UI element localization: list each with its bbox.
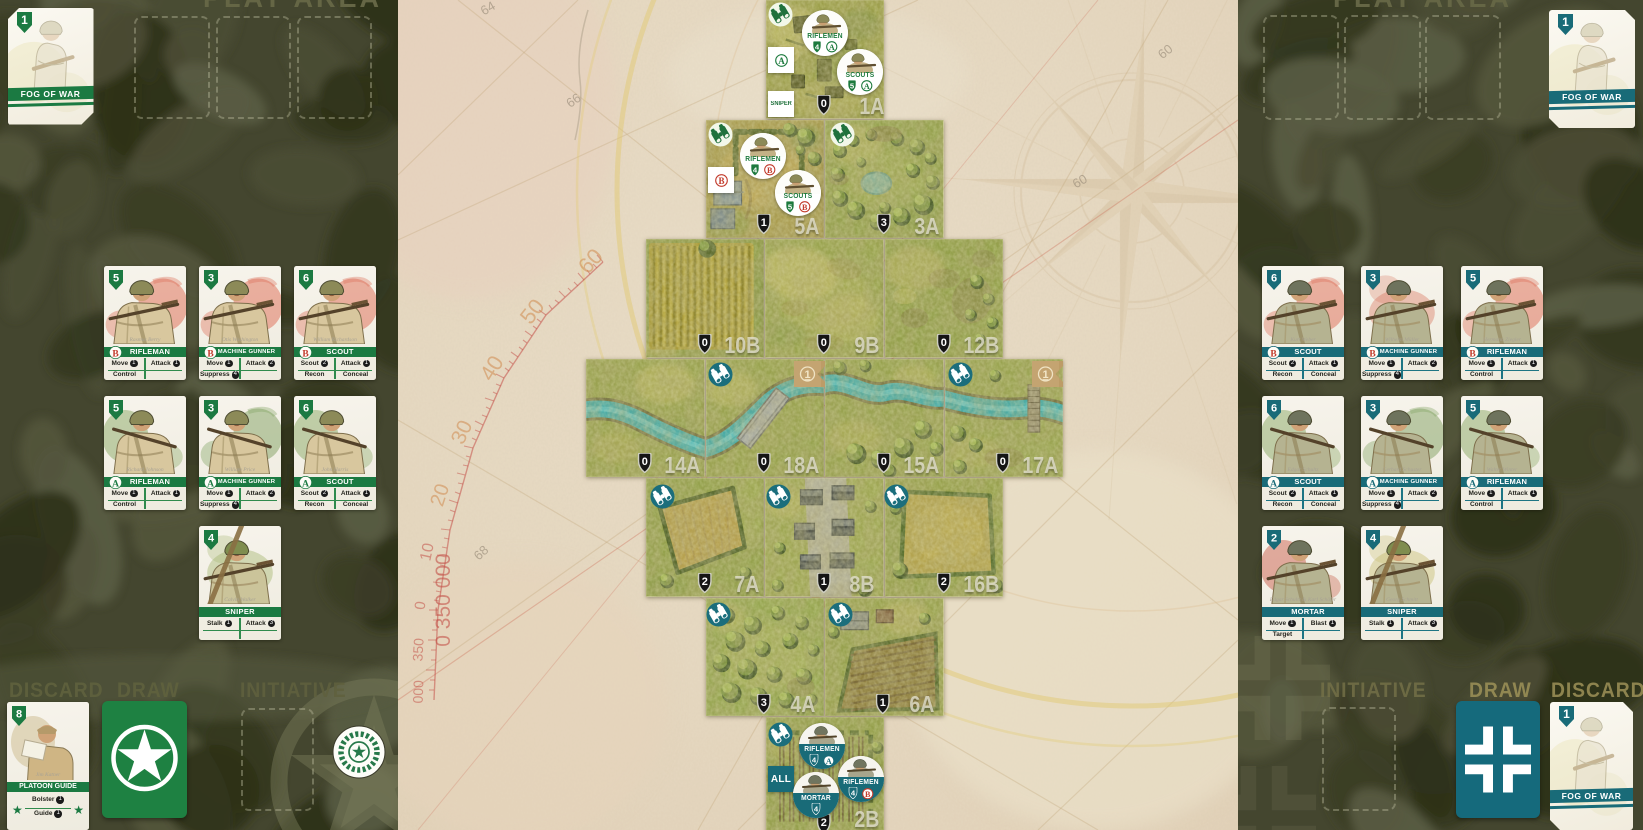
- svg-text:0: 0: [702, 337, 708, 349]
- svg-text:B: B: [767, 166, 773, 175]
- svg-text:5: 5: [850, 81, 855, 90]
- svg-text:2: 2: [1271, 533, 1277, 545]
- svg-text:A: A: [778, 56, 785, 66]
- svg-text:4: 4: [814, 805, 819, 814]
- svg-text:2: 2: [821, 817, 827, 829]
- svg-text:4: 4: [851, 789, 856, 798]
- svg-text:6: 6: [303, 403, 309, 415]
- svg-text:4: 4: [812, 756, 817, 765]
- svg-text:1: 1: [21, 13, 28, 27]
- svg-text:A: A: [829, 43, 835, 52]
- svg-text:5: 5: [113, 403, 119, 415]
- svg-text:2: 2: [941, 576, 947, 588]
- svg-text:6: 6: [1271, 273, 1277, 285]
- svg-text:0: 0: [881, 456, 887, 468]
- svg-text:000: 000: [410, 680, 427, 704]
- svg-text:1: 1: [1563, 707, 1570, 721]
- svg-text:5: 5: [1470, 273, 1476, 285]
- svg-text:5: 5: [788, 202, 793, 211]
- svg-text:4: 4: [815, 42, 820, 51]
- svg-text:B: B: [718, 176, 724, 186]
- svg-text:0: 0: [412, 600, 430, 610]
- svg-text:3: 3: [881, 217, 887, 229]
- svg-text:3: 3: [1370, 403, 1376, 415]
- svg-text:B: B: [802, 203, 808, 212]
- svg-text:6: 6: [1271, 403, 1277, 415]
- svg-text:8: 8: [16, 709, 22, 721]
- svg-text:3: 3: [208, 403, 214, 415]
- svg-text:A: A: [864, 82, 870, 91]
- svg-text:0: 0: [761, 456, 767, 468]
- svg-text:4: 4: [1370, 533, 1377, 545]
- svg-text:1: 1: [821, 576, 827, 588]
- svg-text:5: 5: [113, 273, 119, 285]
- svg-text:B: B: [865, 790, 871, 799]
- svg-text:1: 1: [761, 217, 767, 229]
- svg-text:5: 5: [1470, 403, 1476, 415]
- svg-text:3: 3: [1370, 273, 1376, 285]
- svg-text:350: 350: [409, 637, 426, 661]
- svg-text:A: A: [826, 757, 832, 766]
- svg-text:0: 0: [642, 456, 648, 468]
- svg-text:3: 3: [761, 697, 767, 709]
- svg-text:3: 3: [208, 273, 214, 285]
- svg-text:1: 1: [880, 697, 886, 709]
- svg-text:4: 4: [753, 165, 758, 174]
- svg-text:0: 0: [1000, 456, 1006, 468]
- svg-text:1: 1: [1562, 15, 1569, 29]
- svg-text:0: 0: [821, 337, 827, 349]
- svg-text:0: 0: [941, 337, 947, 349]
- svg-text:4: 4: [208, 533, 215, 545]
- svg-text:6: 6: [303, 273, 309, 285]
- svg-text:0 350 000: 0 350 000: [432, 553, 455, 646]
- svg-text:2: 2: [702, 576, 708, 588]
- svg-text:0: 0: [821, 98, 827, 110]
